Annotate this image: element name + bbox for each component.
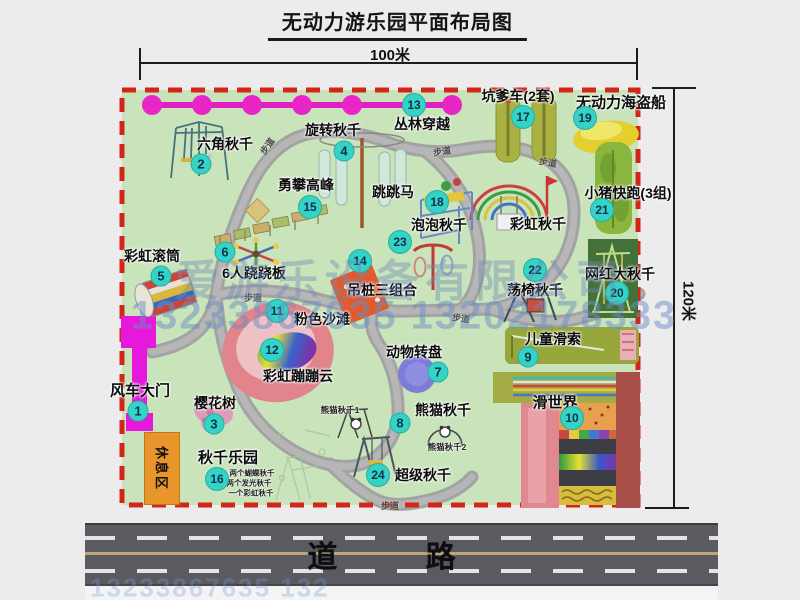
- attraction-badge-24: 24: [366, 463, 390, 487]
- attraction-badge-16: 16: [205, 467, 229, 491]
- dim-width-label: 100米: [370, 44, 410, 65]
- dim-right-tick-top: [652, 87, 696, 89]
- attraction-badge-2: 2: [191, 154, 212, 175]
- attraction-label-7: 动物转盘: [386, 342, 442, 362]
- attraction-label-1: 风车大门: [110, 380, 170, 401]
- attraction-label-12: 彩虹蹦蹦云: [263, 366, 333, 386]
- road-label: 道 路: [307, 532, 495, 576]
- screenshot-stage: 无动力游乐园平面布局图 100米 120米: [0, 0, 800, 600]
- footpath-label-5: 步道: [381, 499, 399, 512]
- attraction-badge-22: 22: [523, 258, 547, 282]
- dim-top-tick-left: [139, 48, 141, 80]
- attraction-label-24: 超级秋千: [395, 465, 451, 485]
- extra-label-0: 彩虹秋千: [510, 214, 566, 234]
- attraction-label-15: 勇攀高峰: [278, 175, 334, 195]
- dim-top-tick-right: [636, 48, 638, 80]
- dim-right-tick-bottom: [645, 507, 689, 509]
- rest-area-box: 休息区: [144, 432, 180, 505]
- attraction-badge-4: 4: [334, 141, 355, 162]
- page-title: 无动力游乐园平面布局图: [268, 6, 527, 41]
- attraction-badge-23: 23: [388, 230, 412, 254]
- footpath-label-1: 步道: [432, 143, 452, 158]
- footpath-label-3: 步道: [244, 291, 262, 304]
- footpath-label-4: 步道: [451, 310, 471, 325]
- attraction-badge-11: 11: [265, 299, 289, 323]
- attraction-label-18: 跳跳马: [372, 182, 414, 202]
- attraction-label-11: 粉色沙滩: [294, 309, 350, 329]
- rest-area-label: 休息区: [153, 446, 172, 491]
- attraction-badge-6: 6: [215, 242, 236, 263]
- attraction-label-17: 坑爹车(2套): [481, 86, 554, 106]
- attraction-badge-5: 5: [151, 266, 172, 287]
- attraction-badge-9: 9: [518, 347, 539, 368]
- attraction-badge-19: 19: [573, 106, 597, 130]
- note-label-0: 熊猫秋千1: [321, 404, 360, 416]
- dim-right-line: [673, 88, 675, 508]
- below-road-strip: [85, 584, 718, 600]
- attraction-badge-12: 12: [260, 338, 284, 362]
- attraction-label-2: 六角秋千: [197, 134, 253, 154]
- attraction-label-6: 6人跷跷板: [222, 263, 286, 283]
- dim-height-label: 120米: [679, 281, 700, 321]
- note-label-1: 熊猫秋千2: [428, 441, 467, 453]
- attraction-badge-1: 1: [128, 401, 149, 422]
- attraction-badge-15: 15: [298, 195, 322, 219]
- attraction-label-14: 吊桩三组合: [347, 280, 417, 300]
- attraction-badge-7: 7: [428, 362, 449, 383]
- attraction-badge-13: 13: [402, 93, 426, 117]
- attraction-badge-10: 10: [560, 406, 584, 430]
- attraction-badge-14: 14: [348, 249, 372, 273]
- attraction-label-16: 秋千乐园: [198, 447, 258, 468]
- attraction-label-8: 熊猫秋千: [415, 400, 471, 420]
- attraction-badge-3: 3: [204, 414, 225, 435]
- attraction-label-9: 儿童滑索: [525, 329, 581, 349]
- attraction-badge-17: 17: [511, 105, 535, 129]
- attraction-badge-20: 20: [605, 281, 629, 305]
- attraction-label-3: 樱花树: [194, 393, 236, 413]
- attraction-label-13: 丛林穿越: [394, 114, 450, 134]
- attraction-label-23: 泡泡秋千: [411, 215, 467, 235]
- attraction-label-5: 彩虹滚筒: [124, 246, 180, 266]
- attraction-label-4: 旋转秋千: [305, 120, 361, 140]
- attraction-badge-8: 8: [390, 413, 411, 434]
- attraction-badge-21: 21: [590, 198, 614, 222]
- attraction-label-22: 荡椅秋千: [507, 280, 563, 300]
- attraction-badge-18: 18: [425, 190, 449, 214]
- road: 道 路: [85, 523, 718, 586]
- note-label-4: 一个彩虹秋千: [229, 488, 274, 499]
